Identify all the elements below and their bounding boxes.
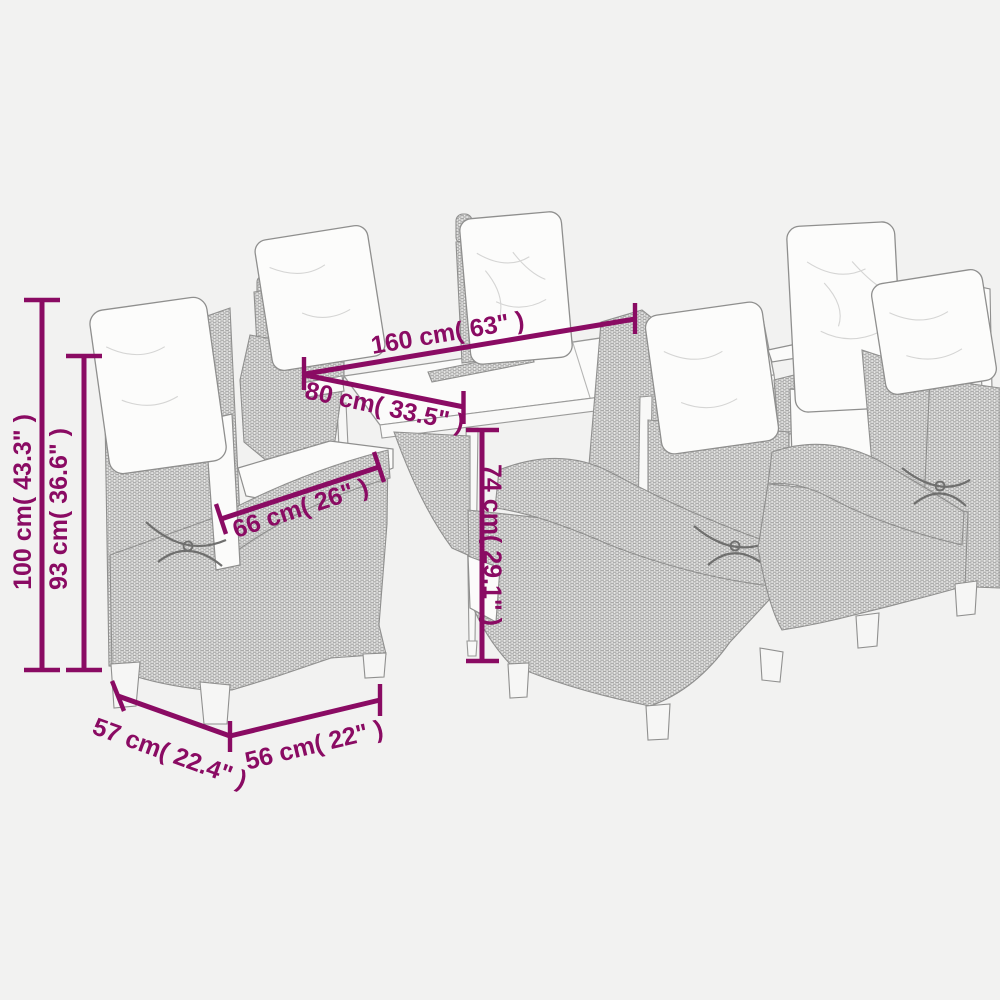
svg-text:93 cm( 36.6" ): 93 cm( 36.6" ) <box>45 428 73 590</box>
svg-text:100 cm( 43.3" ): 100 cm( 43.3" ) <box>9 414 37 590</box>
svg-text:74 cm( 29.1" ): 74 cm( 29.1" ) <box>478 464 506 626</box>
